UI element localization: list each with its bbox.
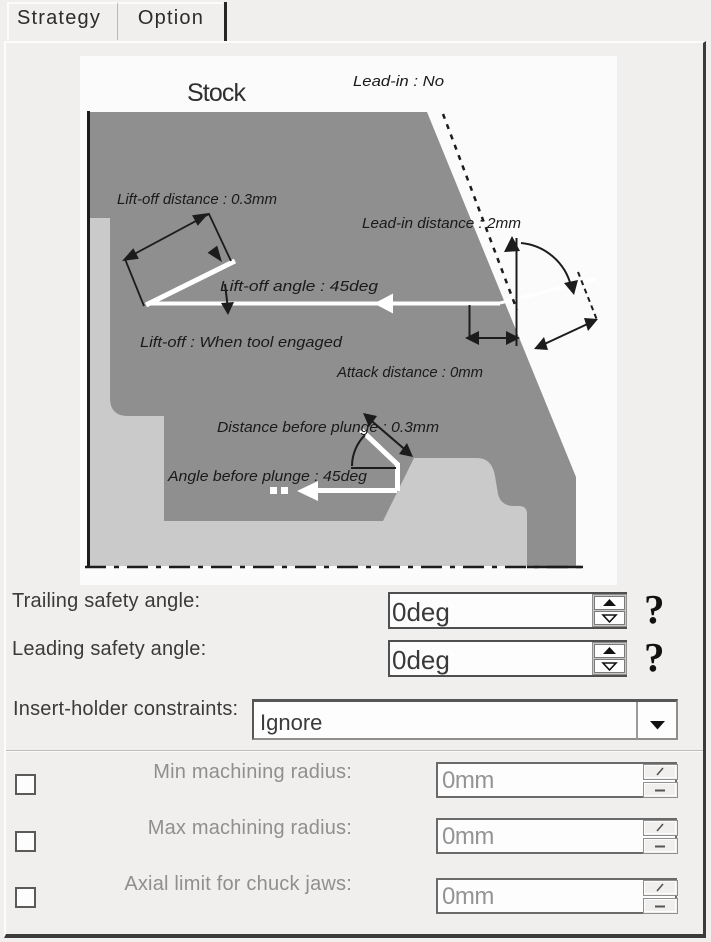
svg-text:Distance before plunge : 0.3mm: Distance before plunge : 0.3mm [217,419,439,436]
svg-text:Lead-in : No: Lead-in : No [353,73,444,90]
svg-text:Attack distance : 0mm: Attack distance : 0mm [336,364,483,381]
svg-text:Lead-in distance : 2mm: Lead-in distance : 2mm [362,215,521,232]
svg-text:Lift-off angle : 45deg: Lift-off angle : 45deg [220,278,379,295]
svg-text:Angle before plunge : 45deg: Angle before plunge : 45deg [167,468,368,485]
svg-text:Lift-off : When tool engaged: Lift-off : When tool engaged [140,334,343,351]
svg-text:Lift-off distance : 0.3mm: Lift-off distance : 0.3mm [117,191,277,208]
svg-text:Stock: Stock [187,79,247,107]
